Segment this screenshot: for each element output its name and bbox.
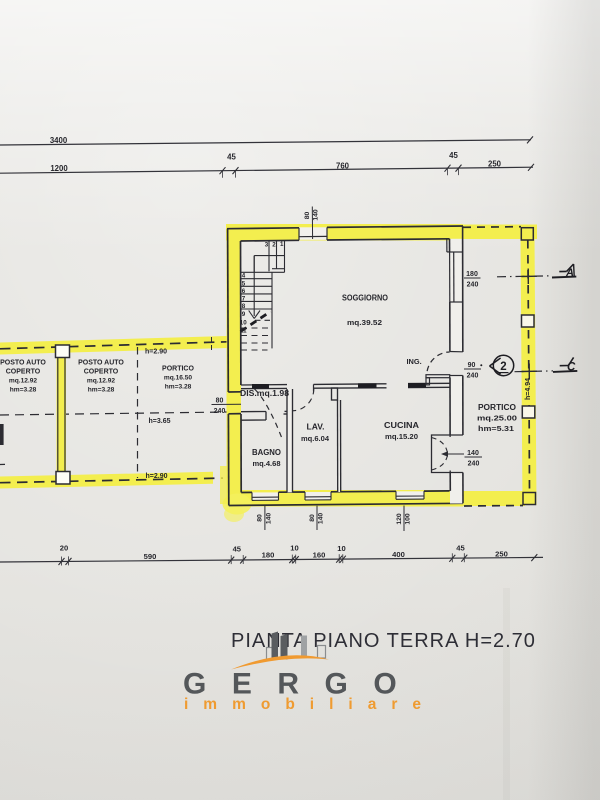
svg-text:hm=3.28: hm=3.28 (10, 387, 37, 394)
svg-text:10: 10 (290, 544, 298, 553)
svg-text:mq.4.68: mq.4.68 (253, 459, 281, 468)
svg-text:45: 45 (456, 543, 465, 552)
svg-text:7: 7 (242, 296, 246, 303)
svg-text:A: A (565, 267, 574, 279)
svg-text:hm=3.28: hm=3.28 (88, 387, 115, 394)
svg-text:140: 140 (317, 513, 324, 525)
svg-text:PORTICO: PORTICO (162, 366, 194, 373)
svg-text:h=4.94: h=4.94 (525, 378, 532, 400)
svg-text:80: 80 (257, 514, 264, 522)
svg-text:5: 5 (242, 281, 246, 288)
svg-text:mq.39.52: mq.39.52 (347, 318, 382, 327)
svg-text:immobiliare: immobiliare (184, 696, 436, 713)
svg-text:DIS.mq.1.98: DIS.mq.1.98 (240, 389, 290, 398)
svg-text:11: 11 (240, 328, 247, 335)
svg-text:h=2.90: h=2.90 (145, 349, 167, 356)
svg-text:CUCINA: CUCINA (384, 420, 419, 430)
svg-text:140: 140 (467, 450, 479, 457)
svg-text:240: 240 (467, 282, 479, 289)
svg-text:COPERTO: COPERTO (84, 369, 119, 376)
svg-text:180: 180 (262, 550, 275, 559)
svg-text:400: 400 (392, 550, 405, 559)
svg-text:10: 10 (337, 544, 345, 553)
svg-text:9: 9 (242, 311, 246, 318)
svg-text:1: 1 (280, 241, 284, 248)
svg-text:mq.16.50: mq.16.50 (164, 375, 193, 382)
svg-text:mq.15.20: mq.15.20 (385, 432, 418, 441)
svg-text:3400: 3400 (50, 136, 68, 145)
svg-text:250: 250 (488, 160, 502, 169)
svg-text:mq.25.00: mq.25.00 (477, 414, 517, 423)
svg-text:140: 140 (312, 209, 319, 221)
svg-text:COPERTO: COPERTO (6, 369, 41, 376)
svg-text:80: 80 (309, 514, 316, 522)
svg-text:BAGNO: BAGNO (252, 447, 281, 457)
svg-text:hm=3.28: hm=3.28 (165, 384, 192, 391)
svg-text:590: 590 (144, 552, 157, 561)
svg-text:4: 4 (242, 272, 246, 279)
svg-text:6: 6 (242, 288, 246, 295)
svg-text:C: C (567, 361, 576, 373)
svg-text:SOGGIORNO: SOGGIORNO (342, 293, 388, 303)
svg-text:POSTO AUTO: POSTO AUTO (0, 360, 46, 367)
svg-text:100: 100 (404, 513, 411, 525)
svg-text:LAV.: LAV. (307, 422, 325, 432)
svg-text:120: 120 (396, 513, 403, 525)
svg-text:3: 3 (265, 242, 269, 249)
svg-text:mq.12.92: mq.12.92 (9, 378, 38, 385)
svg-text:POSTO AUTO: POSTO AUTO (78, 360, 124, 367)
svg-text:8: 8 (242, 303, 246, 310)
svg-text:45: 45 (233, 544, 242, 553)
svg-text:ING.: ING. (407, 357, 422, 366)
svg-text:10: 10 (240, 319, 247, 326)
svg-text:h=2.90: h=2.90 (146, 473, 168, 480)
svg-text:90: 90 (468, 362, 476, 369)
svg-text:hm=5.31: hm=5.31 (478, 424, 514, 433)
svg-text:160: 160 (313, 551, 326, 560)
svg-text:h=3.65: h=3.65 (149, 418, 171, 425)
svg-text:140: 140 (265, 513, 272, 525)
svg-text:2: 2 (500, 361, 506, 373)
svg-text:PORTICO: PORTICO (478, 403, 516, 412)
svg-text:250: 250 (495, 550, 508, 559)
svg-text:mq.12.92: mq.12.92 (87, 378, 116, 385)
svg-text:240: 240 (467, 373, 479, 380)
svg-text:2: 2 (272, 241, 276, 248)
svg-text:45: 45 (227, 153, 236, 162)
svg-text:240: 240 (468, 461, 480, 468)
svg-text:20: 20 (60, 544, 68, 553)
svg-text:1200: 1200 (50, 164, 68, 173)
svg-text:80: 80 (216, 398, 224, 405)
svg-text:45: 45 (449, 151, 458, 160)
svg-text:240: 240 (214, 408, 226, 415)
svg-text:180: 180 (466, 271, 478, 278)
svg-text:80: 80 (304, 212, 311, 220)
svg-text:760: 760 (336, 162, 350, 171)
svg-text:mq.6.04: mq.6.04 (301, 434, 330, 443)
